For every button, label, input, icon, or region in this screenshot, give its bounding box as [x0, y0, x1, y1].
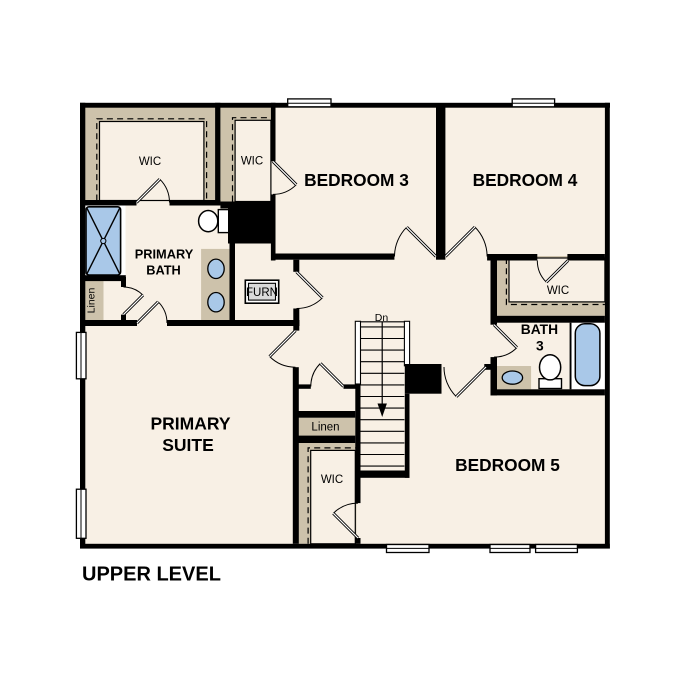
svg-text:WIC: WIC [241, 156, 263, 168]
svg-text:Linen: Linen [86, 288, 98, 314]
svg-text:BEDROOM 5: BEDROOM 5 [455, 455, 560, 475]
svg-text:WIC: WIC [139, 156, 161, 168]
svg-text:3: 3 [536, 339, 544, 354]
svg-text:FURN: FURN [246, 287, 278, 299]
svg-text:WIC: WIC [321, 474, 343, 486]
svg-text:Dn: Dn [375, 312, 389, 324]
svg-text:WIC: WIC [547, 285, 569, 297]
svg-text:BATH: BATH [146, 262, 181, 277]
svg-text:Linen: Linen [311, 422, 339, 434]
svg-text:UPPER LEVEL: UPPER LEVEL [82, 564, 221, 586]
svg-text:BEDROOM 3: BEDROOM 3 [304, 170, 409, 190]
svg-text:PRIMARY: PRIMARY [135, 247, 194, 262]
svg-text:BEDROOM 4: BEDROOM 4 [473, 170, 578, 190]
svg-text:SUITE: SUITE [162, 435, 214, 455]
svg-text:PRIMARY: PRIMARY [150, 414, 230, 434]
svg-text:BATH: BATH [521, 322, 558, 337]
